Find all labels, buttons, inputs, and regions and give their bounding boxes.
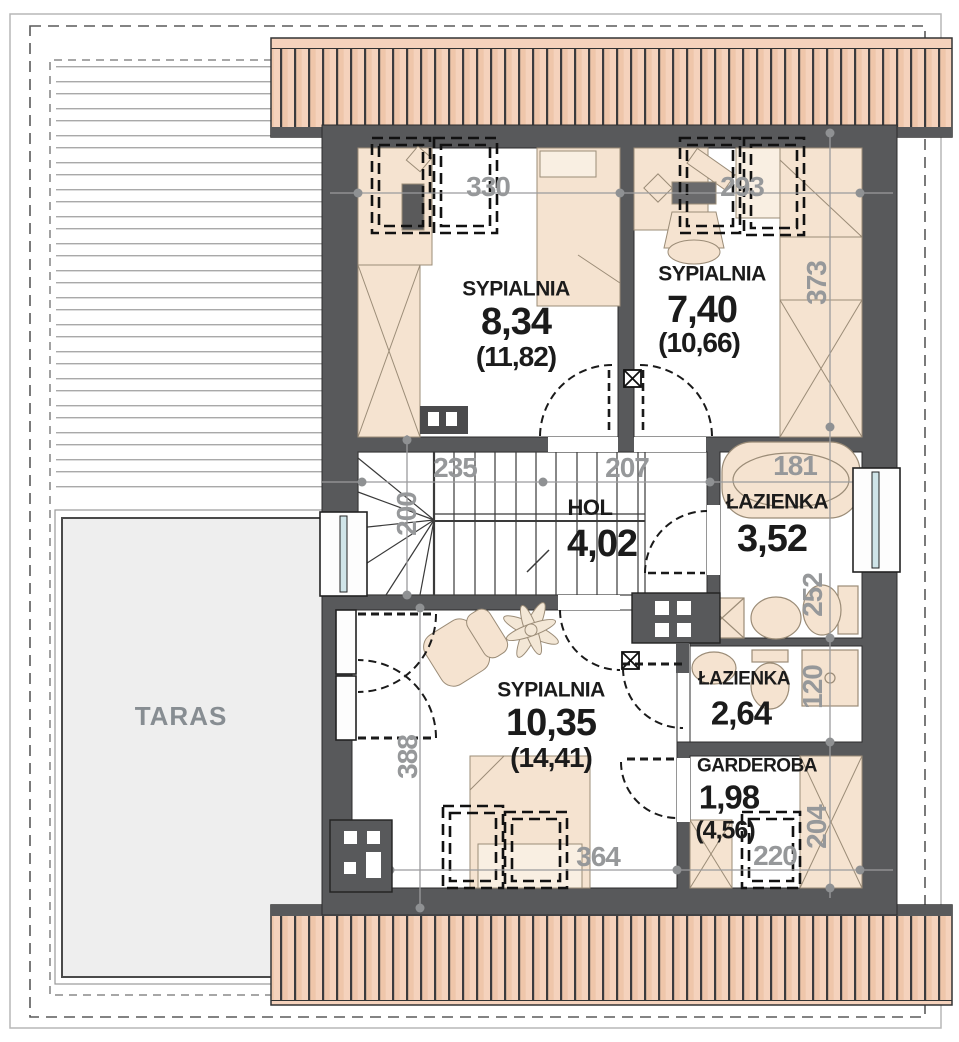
- room-label-garderoba: GARDEROBA: [697, 757, 817, 776]
- dim-235: 235: [433, 454, 477, 482]
- room-area-bath-1: 3,52: [737, 520, 807, 558]
- dim-293: 293: [720, 173, 764, 201]
- window-icon: [320, 512, 367, 596]
- dim-200: 200: [393, 492, 421, 536]
- dim-207: 207: [605, 454, 649, 482]
- room-area-bedroom-1: 8,34: [481, 303, 551, 341]
- dim-373: 373: [803, 261, 831, 305]
- room-label-bedroom-3: SYPIALNIA: [497, 680, 605, 701]
- room-area-garderoba: 1,98: [699, 781, 759, 814]
- chimney-icon: [330, 820, 392, 892]
- sink-icon: [751, 597, 801, 639]
- room-label-hol: HOL: [568, 497, 613, 519]
- room-label-bath-2: ŁAZIENKA: [698, 670, 790, 689]
- room-total-bedroom-3: (14,41): [510, 744, 592, 772]
- floor-plan: SYPIALNIA 8,34 (11,82) SYPIALNIA 7,40 (1…: [0, 0, 959, 1042]
- dim-330: 330: [466, 173, 510, 201]
- dim-204: 204: [803, 805, 831, 849]
- room-label-bedroom-2: SYPIALNIA: [658, 264, 766, 285]
- eaves-band-top: [271, 38, 952, 137]
- monitor-icon: [402, 184, 424, 230]
- room-area-bath-2: 2,64: [711, 697, 771, 730]
- dim-252: 252: [799, 573, 827, 617]
- room-total-garderoba: (4,56): [695, 819, 754, 844]
- room-area-hol: 4,02: [567, 525, 637, 563]
- room-label-taras: TARAS: [135, 703, 228, 729]
- room-label-bath-1: ŁAZIENKA: [726, 492, 828, 513]
- room-label-bedroom-1: SYPIALNIA: [462, 279, 570, 300]
- eaves-band-bottom: [271, 905, 952, 1005]
- dim-220: 220: [753, 842, 797, 870]
- dim-120: 120: [799, 665, 827, 709]
- dim-388: 388: [394, 735, 422, 779]
- room-area-bedroom-2: 7,40: [667, 291, 737, 329]
- dim-364: 364: [576, 843, 620, 871]
- room-total-bedroom-1: (11,82): [476, 343, 556, 371]
- plan-graphics: [0, 0, 959, 1042]
- toilet-icon: [752, 650, 788, 662]
- dim-181: 181: [773, 452, 817, 480]
- room-total-bedroom-2: (10,66): [658, 329, 740, 357]
- window-icon: [853, 468, 900, 572]
- radiator-icon: [420, 406, 468, 434]
- room-area-bedroom-3: 10,35: [506, 704, 596, 742]
